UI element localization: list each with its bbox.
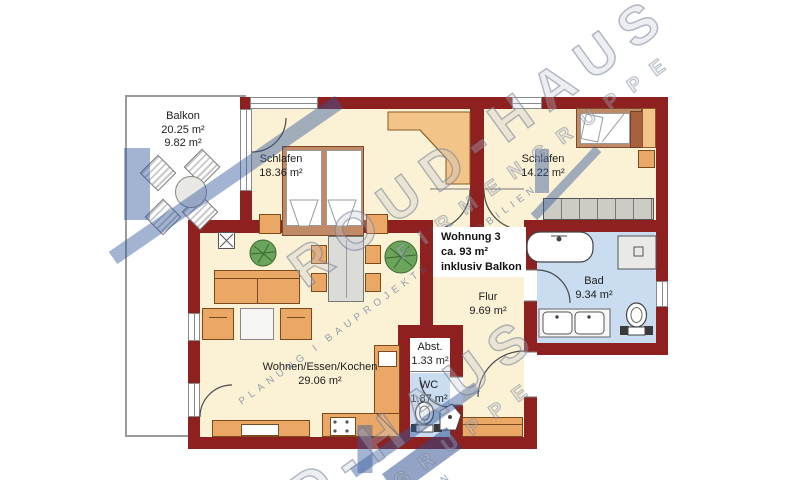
kitchen-corner: [376, 413, 398, 435]
room-label-bad: Bad 9.34 m²: [539, 275, 649, 302]
room-label-balkon: Balkon 20.25 m² 9.82 m²: [128, 110, 238, 151]
room-label-abstellraum: Abst. 1.33 m²: [398, 341, 462, 368]
room-label-wohnen: Wohnen/Essen/Kochen 29.06 m²: [245, 361, 395, 388]
toilet: [620, 303, 653, 335]
corner-basin: [440, 404, 461, 430]
unit-title-box: Wohnung 3 ca. 93 m² inklusiv Balkon: [433, 227, 526, 277]
plant: [250, 240, 417, 273]
bathtub: [527, 232, 593, 262]
room-label-schlafen-2: Schlafen 14.22 m²: [488, 153, 598, 180]
room-label-flur: Flur 9.69 m²: [433, 291, 543, 318]
floor-plan: Balkon 20.25 m² 9.82 m² Schlafen 18.36 m…: [0, 0, 800, 480]
floor-drain-icon: [220, 234, 233, 247]
room-label-schlafen-1: Schlafen 18.36 m²: [226, 153, 336, 180]
toilet: [411, 402, 442, 432]
plan-detail-layer: [0, 0, 800, 480]
washbasin: [539, 309, 610, 337]
wardrobe: [388, 112, 470, 184]
stove-burners: [333, 420, 348, 432]
shower: [618, 236, 656, 269]
pillow: [290, 200, 356, 226]
blanket-fold: [602, 114, 624, 142]
room-label-wc: WC 1.87 m²: [397, 379, 461, 406]
